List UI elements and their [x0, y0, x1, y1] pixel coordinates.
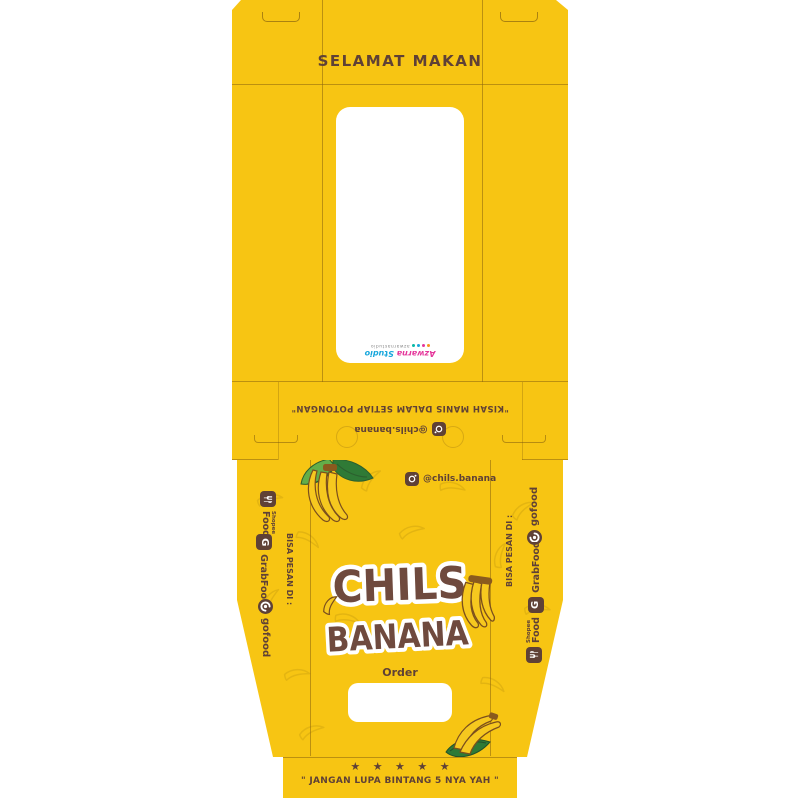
banana-leaf-illustration — [299, 458, 379, 540]
order-write-box — [348, 683, 452, 722]
order-label: Order — [237, 666, 563, 679]
watermark-studio-name: Azwarna Studio — [336, 349, 464, 358]
lock-slot-right — [502, 435, 546, 443]
fold-line — [482, 0, 483, 84]
watermark-contact-row: azwarnastudio — [336, 342, 464, 349]
main-panel: @chils.banana CHILS BANANA Order — [237, 460, 563, 757]
shopeefood-label: Shopee Food — [261, 511, 276, 537]
designer-watermark: Azwarna Studio azwarnastudio — [336, 342, 464, 358]
lid-panel: SELAMAT MAKAN — [232, 0, 568, 84]
instagram-handle: @chils.banana — [354, 424, 427, 434]
order-channels-label-right: BISA PESAN DI : — [505, 517, 517, 587]
instagram-handle: @chils.banana — [423, 474, 496, 484]
fold-line — [283, 757, 517, 758]
fold-line — [482, 84, 483, 382]
social-dot-icon — [417, 344, 420, 347]
instagram-row-collar: @chils.banana — [232, 422, 568, 436]
watermark-contact-text: azwarnastudio — [370, 342, 409, 349]
delivery-grabfood: G GrabFood — [254, 540, 274, 600]
window-panel: Azwarna Studio azwarnastudio — [232, 84, 568, 382]
shopeefood-icon — [526, 647, 542, 663]
brand-line1: CHILS — [332, 558, 468, 614]
shopeefood-label: Shopee Food — [527, 617, 542, 643]
instagram-row-main: @chils.banana — [405, 472, 496, 486]
cut-line — [522, 459, 568, 460]
die-cut-window: Azwarna Studio azwarnastudio — [336, 107, 464, 363]
order-channels-label-left: BISA PESAN DI : — [282, 533, 294, 603]
shopeefood-icon — [260, 491, 276, 507]
lid-greeting: SELAMAT MAKAN — [232, 52, 568, 70]
gofood-icon — [259, 599, 274, 614]
delivery-gofood: gofood — [256, 598, 276, 658]
tuck-slot-right — [500, 12, 538, 22]
lock-slot-left — [254, 435, 298, 443]
fold-line — [322, 84, 323, 382]
social-dot-icon — [427, 344, 430, 347]
banana-pattern — [296, 721, 328, 746]
rating-stars: ★ ★ ★ ★ ★ — [283, 760, 517, 773]
delivery-grabfood: G GrabFood — [526, 547, 546, 607]
tagline-text: "KISAH MANIS DALAM SETIAP POTONGAN" — [232, 403, 568, 413]
decor-circle — [336, 426, 358, 448]
delivery-shopeefood: Shopee Food — [524, 610, 544, 670]
fold-line — [232, 84, 568, 85]
banana-bunch-icon — [451, 571, 501, 634]
decor-circle — [442, 426, 464, 448]
rating-note: " JANGAN LUPA BINTANG 5 NYA YAH " — [283, 776, 517, 786]
cut-line — [522, 382, 523, 460]
collar-panel: "KISAH MANIS DALAM SETIAP POTONGAN" @chi… — [232, 382, 568, 460]
cut-line — [232, 459, 278, 460]
fold-line — [232, 381, 568, 382]
bottom-strip: ★ ★ ★ ★ ★ " JANGAN LUPA BINTANG 5 NYA YA… — [283, 757, 517, 798]
tuck-slot-left — [262, 12, 300, 22]
delivery-gofood: gofood — [524, 486, 544, 546]
grabfood-icon: G — [256, 534, 272, 550]
brand-logo: CHILS BANANA — [297, 552, 503, 668]
social-dot-icon — [422, 344, 425, 347]
banana-pattern — [395, 520, 428, 547]
cut-line — [278, 382, 279, 460]
social-dot-icon — [412, 344, 415, 347]
packaging-dieline: SELAMAT MAKAN Azwarna Studio azwarnastud… — [0, 0, 800, 800]
brand-line2: BANANA — [326, 613, 471, 660]
fold-line — [322, 0, 323, 84]
instagram-icon — [405, 472, 419, 486]
